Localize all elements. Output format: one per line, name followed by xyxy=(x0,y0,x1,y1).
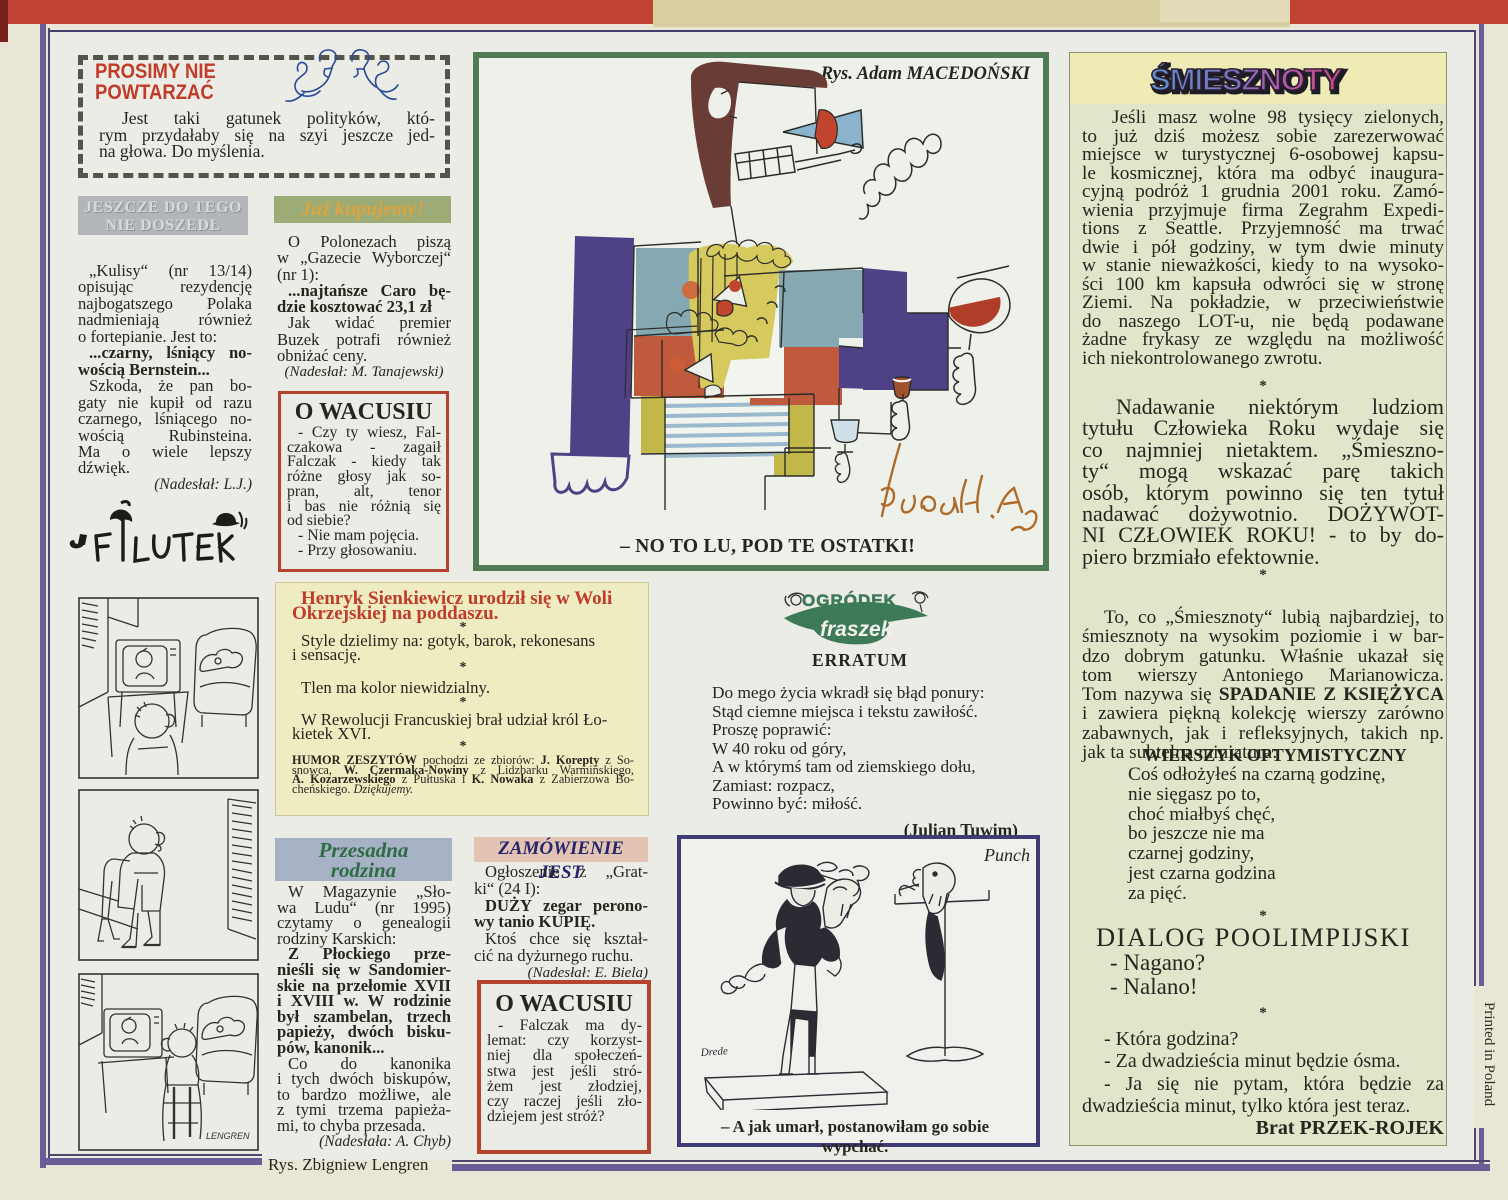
svg-text:Drede: Drede xyxy=(699,1045,728,1059)
svg-text:OGRÓDEK: OGRÓDEK xyxy=(802,591,897,610)
svg-text:LENGREN: LENGREN xyxy=(206,1131,250,1141)
svg-text:ŚMIESZNOTY: ŚMIESZNOTY xyxy=(1150,61,1343,97)
svg-text:fraszek: fraszek xyxy=(820,618,894,641)
